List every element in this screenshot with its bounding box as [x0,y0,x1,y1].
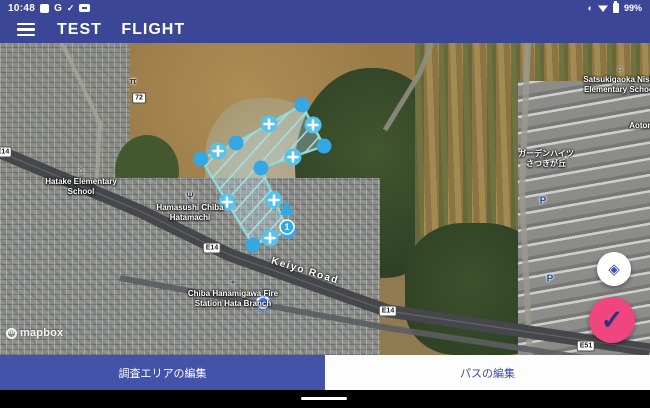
my-location-button[interactable]: ◈ [597,252,631,286]
sim-notification-icon [79,4,90,12]
google-notification-icon: G [54,3,62,14]
hamburger-menu-icon[interactable] [17,23,35,36]
mapbox-logo-icon: m [6,328,17,339]
street-road [62,43,100,193]
android-nav-bar [0,390,650,408]
path-start-number: 1 [284,222,289,232]
data-saver-icon: ◐ [588,4,593,13]
confirm-button[interactable]: ✓ [589,297,635,343]
app-screen: 10:48 G ✓ ◐ 99% TEST FLIGHT [0,0,650,408]
home-indicator[interactable] [301,397,347,400]
polygon-vertex-handle[interactable] [295,98,310,113]
checkmark-icon: ✓ [601,305,624,336]
locate-icon: ◈ [608,260,620,278]
polygon-vertex-handle[interactable] [194,152,209,167]
street-road [522,43,530,355]
page-title: TEST FLIGHT [57,21,185,39]
battery-icon [613,3,619,13]
app-bar: TEST FLIGHT [0,16,650,43]
map-canvas[interactable]: 1 π⌂Hatake ElementarySchoolΨHamasushi Ch… [0,43,650,355]
notification-thumbnail-icon [40,4,49,13]
status-bar: 10:48 G ✓ ◐ 99% [0,0,650,16]
roads-layer [0,43,650,355]
battery-percent: 99% [624,3,642,13]
tab-edit-path-label: パスの編集 [460,365,515,381]
tab-edit-survey-area-label: 調査エリアの編集 [119,365,207,381]
wifi-icon [598,4,608,12]
tab-edit-survey-area[interactable]: 調査エリアの編集 [0,355,325,390]
map-overlay-svg: 1 [0,43,650,355]
clock: 10:48 [8,3,35,14]
polygon-vertex-handle[interactable] [246,238,261,253]
polygon-vertex-handle[interactable] [229,136,244,151]
check-notification-icon: ✓ [67,3,75,14]
polygon-vertex-handle[interactable] [254,161,269,176]
polygon-vertex-handle[interactable] [317,139,332,154]
tab-edit-path[interactable]: パスの編集 [325,355,650,390]
user-location-dot [258,297,269,308]
mapbox-attribution[interactable]: m mapbox [6,327,63,339]
branch-road [385,43,432,130]
mapbox-wordmark: mapbox [20,327,63,339]
bottom-tab-bar: 調査エリアの編集 パスの編集 [0,355,650,390]
